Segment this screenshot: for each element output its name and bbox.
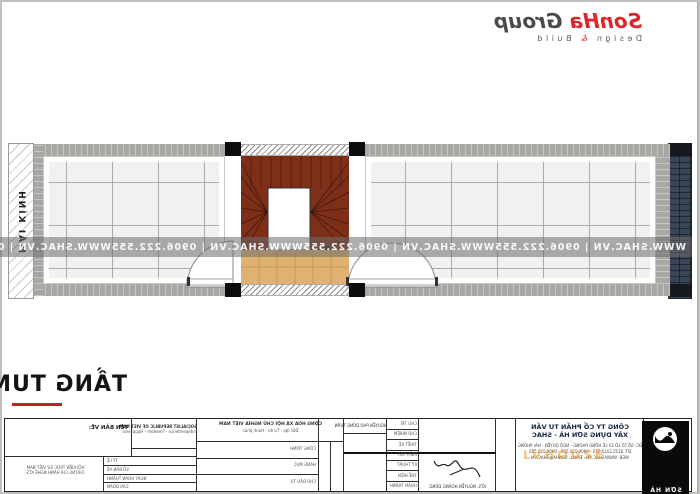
company-logo-box: SƠN HÀ: [642, 421, 689, 494]
brand-tagline: Design & Build: [494, 34, 642, 43]
left-row-label: TỶ LỆ: [107, 458, 118, 463]
left-row-label: SỐ BẢN VẼ: [107, 467, 129, 472]
brand-suffix-text: Group: [494, 9, 563, 33]
watermark-text: WWW.SHAC.VN | 0906.222.555: [0, 242, 111, 253]
mid-row-label: HẠNG MỤC: [294, 462, 316, 467]
mid-row-label: CHỦ ĐẦU TƯ: [290, 479, 316, 484]
motto-en-line2: Independence - Freedom - Happiness: [132, 429, 197, 434]
brand-tagline-design: Design: [593, 34, 642, 43]
client-name: NGUYỄN PHÚ DŨNG TUẤN: [344, 423, 387, 428]
stage-label: KỸ THUẬT: [397, 462, 417, 467]
certificate-line2: CHỨNG CHỈ HÀNH NGHỀ KTS: [7, 470, 104, 475]
stage-label: THIẾT KẾ: [399, 442, 417, 447]
watermark-text: WWW.SHAC.VN | 0906.222.555: [111, 242, 303, 253]
mid-rows: CÔNG TRÌNH HẠNG MỤC CHỦ ĐẦU TƯ: [197, 441, 319, 491]
company-name-line1: CÔNG TY CỔ PHẦN TƯ VẤN: [517, 423, 643, 431]
motto-vn: CỘNG HÒA XÃ HỘI CHỦ NGHĨA VIỆT NAM Độc l…: [197, 422, 344, 433]
brand-logo-name: SonHa Group: [494, 9, 642, 33]
drawing-sheet: SonHa Group Design & Build MÁI KÍNH: [0, 0, 700, 494]
motto-vn-line2: Độc lập - Tự do - Hạnh phúc: [197, 428, 344, 433]
certificate-cell: HỘI KIẾN TRÚC SƯ VIỆT NAM CHỨNG CHỈ HÀNH…: [7, 465, 104, 476]
mirrored-drawing: SonHa Group Design & Build MÁI KÍNH: [0, 0, 700, 494]
stage-label: KIỂM TRA: [398, 452, 417, 457]
watermark-text: WWW.SHAC.VN | 0906.222.555: [303, 242, 495, 253]
company-logo-text: SƠN HÀ: [649, 487, 681, 494]
left-rows: TỶ LỆ SỐ BẢN VẼ NGÀY HOÀN THÀNH GIAI ĐOẠ…: [104, 456, 197, 491]
stage-label: CHỦ NHIỆM: [394, 431, 417, 436]
architect-name: KTS. NGUYỄN HOÀNG DŨNG: [419, 484, 496, 489]
left-row-label: GIAI ĐOẠN: [107, 484, 128, 489]
orange-watermark: LVHOUSE: [523, 448, 606, 462]
mid-row-label: CÔNG TRÌNH: [290, 446, 316, 451]
motto-en: SOCIALIST REPUBLIC OF VIET NAM Independe…: [132, 424, 197, 435]
sonha-emblem-icon: [653, 426, 679, 452]
stage-label: THỂ HIỆN: [398, 473, 417, 478]
brand-name-text: SonHa: [569, 9, 642, 33]
floor-title: TẦNG TUM: [0, 372, 127, 397]
brand-logo: SonHa Group Design & Build: [494, 9, 642, 43]
stair-and-doors-graphic: [0, 140, 700, 300]
stage-label: CHỦ TRÌ: [401, 421, 417, 426]
signature-cell: KTS. NGUYỄN HOÀNG DŨNG: [419, 419, 496, 491]
brand-tagline-build: Build: [534, 34, 572, 43]
floor-title-underline: [12, 403, 62, 406]
drawing-name-label: TÊN BẢN VẼ:: [89, 425, 128, 431]
signature-icon: [432, 455, 484, 481]
company-name-line2: XÂY DỰNG SƠN HÀ - SHAC: [517, 431, 643, 439]
left-row-label: NGÀY HOÀN THÀNH: [107, 476, 147, 481]
stage-label: HOÀN THÀNH: [390, 483, 417, 488]
orange-watermark-text: LVHOUSE: [523, 448, 606, 462]
stage-label-column: CHỦ TRÌ CHỦ NHIỆM THIẾT KẾ KIỂM TRA KỸ T…: [387, 419, 419, 491]
brand-tagline-amp: &: [578, 34, 588, 43]
watermark-text: WWW.SHAC.VN | 0906.222.555: [494, 242, 686, 253]
watermark-band: WWW.SHAC.VN | 0906.222.555 WWW.SHAC.VN |…: [0, 237, 692, 257]
